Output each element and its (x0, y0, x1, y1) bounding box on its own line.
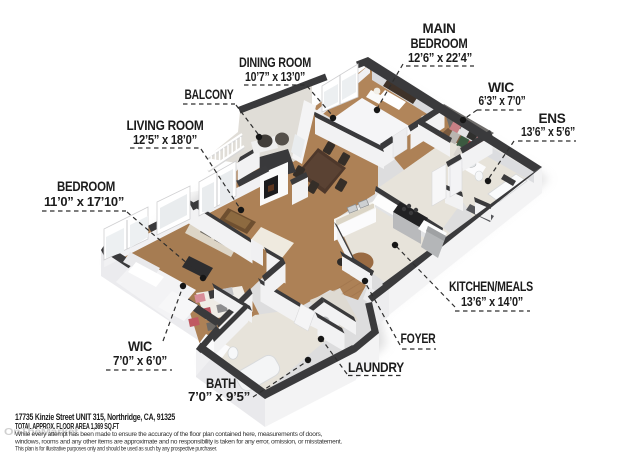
svg-text:11’0” x 17’10”: 11’0” x 17’10” (44, 194, 124, 209)
svg-text:BEDROOM: BEDROOM (57, 178, 115, 194)
svg-text:13’6” x 14’0”: 13’6” x 14’0” (461, 294, 523, 309)
svg-text:While every attempt has been m: While every attempt has been made to ens… (15, 431, 323, 438)
svg-text:KITCHEN/MEALS: KITCHEN/MEALS (449, 278, 533, 294)
svg-text:LAUNDRY: LAUNDRY (348, 359, 405, 375)
svg-text:10’7” x 13’0”: 10’7” x 13’0” (245, 69, 305, 84)
svg-text:BALCONY: BALCONY (185, 86, 235, 102)
svg-text:12’5” x 18’0”: 12’5” x 18’0” (133, 132, 197, 147)
svg-text:12’6” x 22’4”: 12’6” x 22’4” (408, 50, 472, 65)
svg-text:MAIN: MAIN (423, 20, 456, 36)
svg-text:BEDROOM: BEDROOM (411, 35, 468, 51)
svg-text:windows, rooms and any other i: windows, rooms and any other items are a… (14, 439, 343, 446)
svg-text:This plan is for illustrative: This plan is for illustrative purposes o… (15, 446, 217, 452)
svg-text:DINING ROOM: DINING ROOM (239, 54, 311, 70)
svg-text:7’0” x 6’0”: 7’0” x 6’0” (113, 353, 167, 368)
svg-text:7’0” x 9’5”: 7’0” x 9’5” (188, 389, 250, 404)
svg-text:WIC: WIC (128, 338, 152, 354)
svg-text:LIVING ROOM: LIVING ROOM (127, 117, 204, 133)
svg-text:FOYER: FOYER (401, 330, 436, 346)
svg-text:13’6” x 5’6”: 13’6” x 5’6” (521, 124, 575, 139)
svg-text:6’3” x 7’0”: 6’3” x 7’0” (479, 93, 526, 108)
